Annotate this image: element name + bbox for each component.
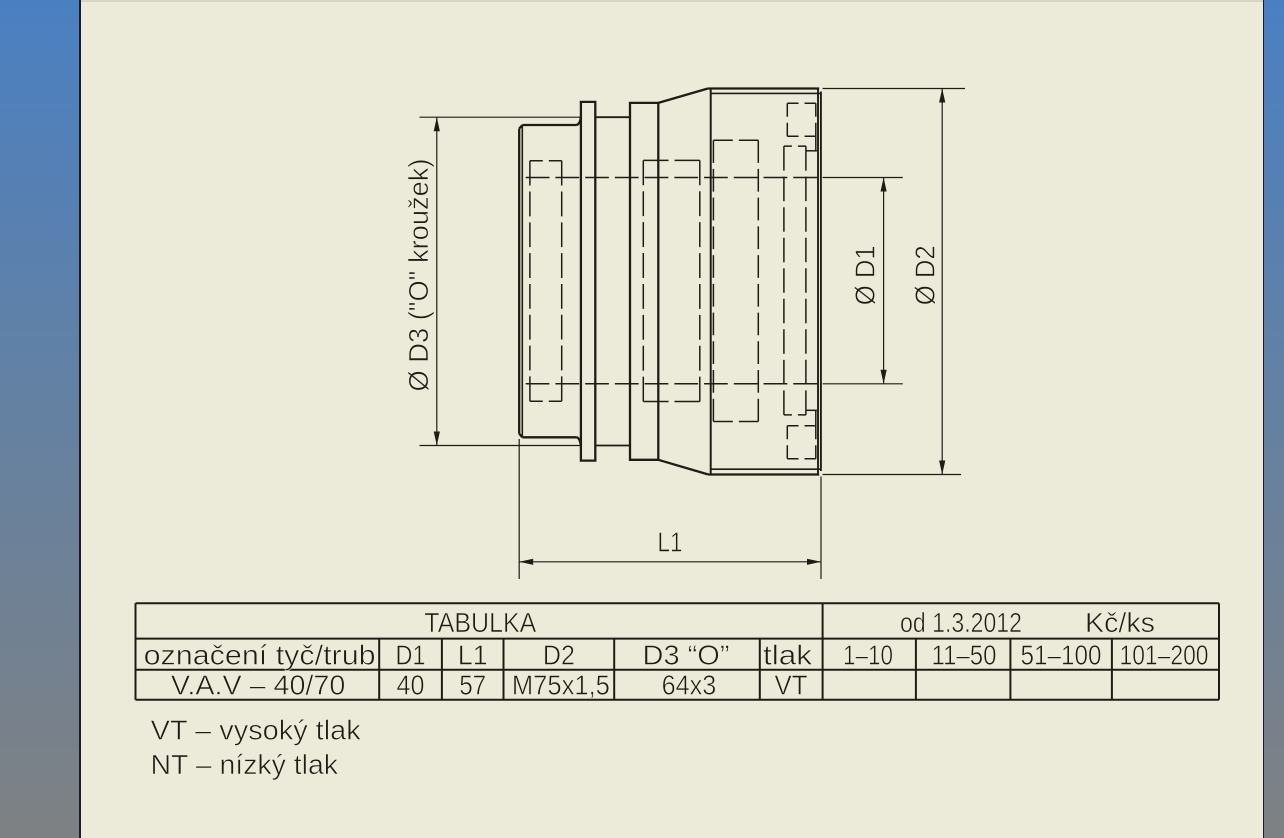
svg-text:od 1.3.2012: od 1.3.2012 [900,607,1022,638]
svg-text:40: 40 [397,669,425,700]
svg-text:NT – nízký tlak: NT – nízký tlak [151,749,340,780]
svg-text:64x3: 64x3 [662,669,717,700]
svg-text:M75x1,5: M75x1,5 [512,669,610,700]
svg-text:51–100: 51–100 [1021,640,1102,671]
svg-text:VT – vysoký tlak: VT – vysoký tlak [151,715,362,746]
svg-text:Ø D2: Ø D2 [910,245,941,305]
svg-text:L1: L1 [458,640,488,671]
svg-text:L1: L1 [658,526,683,557]
svg-text:tlak: tlak [763,640,813,671]
svg-text:101–200: 101–200 [1120,640,1209,671]
svg-text:TABULKA: TABULKA [424,607,536,638]
svg-text:Ø D3 ("O" kroužek): Ø D3 ("O" kroužek) [403,159,434,392]
svg-text:D3 “O”: D3 “O” [643,640,730,671]
svg-text:VT: VT [775,669,808,700]
svg-text:D2: D2 [543,640,575,671]
svg-text:D1: D1 [396,640,426,671]
svg-text:11–50: 11–50 [932,640,997,671]
svg-text:Kč/ks: Kč/ks [1085,607,1155,638]
svg-text:Ø D1: Ø D1 [850,245,881,305]
svg-text:1–10: 1–10 [843,640,893,671]
svg-text:označení tyč/trub: označení tyč/trub [144,640,376,671]
svg-text:57: 57 [459,669,486,700]
svg-text:V.A.V – 40/70: V.A.V – 40/70 [171,669,346,700]
